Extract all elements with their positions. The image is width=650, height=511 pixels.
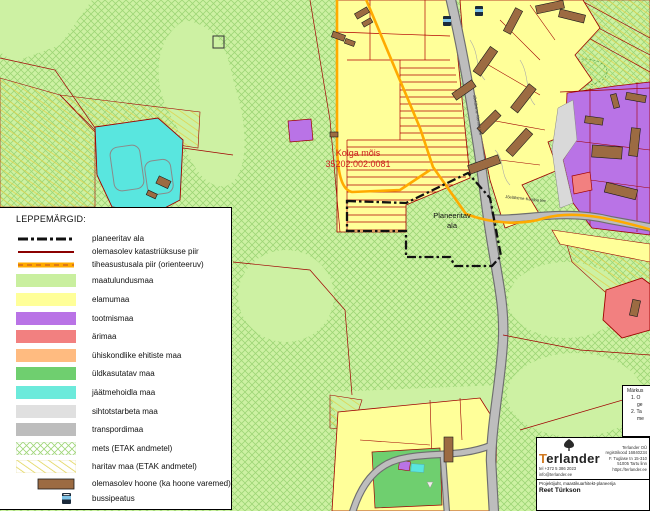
bus-stop-icon (475, 6, 483, 16)
note-line: 2. Ta (627, 409, 650, 416)
uldkasutatav-swatch (16, 367, 76, 380)
waste-storage-area (95, 118, 183, 213)
legend-item-transpordimaa: transpordimaa (16, 420, 231, 439)
estate-cadastral-label: 35202:002:0081 (325, 159, 390, 169)
jaatmehoidla-swatch (16, 386, 76, 399)
tootmismaa-swatch (16, 312, 76, 325)
dash-dot-line-symbol (16, 235, 76, 243)
project-author: Reet Türkson (537, 486, 649, 495)
note-line: me (627, 416, 650, 423)
building-swatch (16, 478, 76, 490)
note-line: ge (627, 402, 650, 409)
legend-item-uldkasutatav-maa: üldkasutatav maa (16, 365, 231, 384)
transpordimaa-swatch (16, 423, 76, 436)
terlander-logo-icon (561, 439, 577, 451)
bus-stop-icon (443, 16, 451, 26)
small-industrial-parcel (288, 119, 313, 142)
orange-dashed-line-symbol (16, 261, 76, 269)
planning-map-sheet: Kolga mõis 35202:002:0081 Planeeritav al… (0, 0, 650, 511)
legend-item-uhiskondlike-ehitiste-maa: ühiskondlike ehitiste maa (16, 346, 231, 365)
legend-item-mets: mets (ETAK andmetel) (16, 439, 231, 458)
legend-panel: LEPPEMÄRGID: planeeritav ala olemasolev … (0, 207, 232, 510)
sihtotstarbeta-swatch (16, 405, 76, 418)
legend-item-bussipeatus: bussipeatus (16, 491, 231, 506)
notes-box: Märkus 1. O ge 2. Ta me (622, 385, 650, 437)
legend-item-planeeritav-ala: planeeritav ala (16, 232, 231, 245)
legend-item-katastriuksuse-piir: olemasolev katastriüksuse piir (16, 245, 231, 258)
legend-item-haritav-maa: haritav maa (ETAK andmetel) (16, 458, 231, 477)
legend-item-maatulundusmaa: maatulundusmaa (16, 272, 231, 291)
company-website[interactable]: https://terlander.ee (600, 467, 647, 472)
company-name: Terlander (539, 452, 600, 465)
maatulundusmaa-swatch (16, 274, 76, 287)
small-business-parcel (572, 172, 592, 194)
elamumaa-swatch (16, 293, 76, 306)
notes-title: Märkus (627, 388, 650, 395)
legend-item-olemasolev-hoone: olemasolev hoone (ka hoone varemed) (16, 476, 231, 491)
note-line: 1. O (627, 395, 650, 402)
planned-area-label: Planeeritav (433, 211, 471, 220)
legend-item-tiheasustusala-piir: tiheasustusala piir (orienteeruv) (16, 258, 231, 271)
uhiskondlike-ehitiste-swatch (16, 349, 76, 362)
legend-item-elamumaa: elamumaa (16, 290, 231, 309)
legend-item-arimaa: ärimaa (16, 327, 231, 346)
estate-name-label: Kolga mõis (336, 148, 381, 158)
solid-line-symbol (16, 248, 76, 256)
bus-stop-icon (16, 492, 76, 505)
legend-item-sihtotstarbeta-maa: sihtotstarbeta maa (16, 402, 231, 421)
company-email[interactable]: info@terlander.ee (539, 472, 600, 478)
title-block: Terlander tel +372 5 386 2023 info@terla… (536, 437, 650, 511)
diagonal-hatch-swatch (16, 460, 76, 473)
legend-item-jaatmehoidla-maa: jäätmehoidla maa (16, 383, 231, 402)
crosshatch-swatch (16, 442, 76, 455)
legend-item-tootmismaa: tootmismaa (16, 309, 231, 328)
arimaa-swatch (16, 330, 76, 343)
legend-title: LEPPEMÄRGID: (16, 214, 231, 224)
planned-area-label: ala (447, 221, 458, 230)
